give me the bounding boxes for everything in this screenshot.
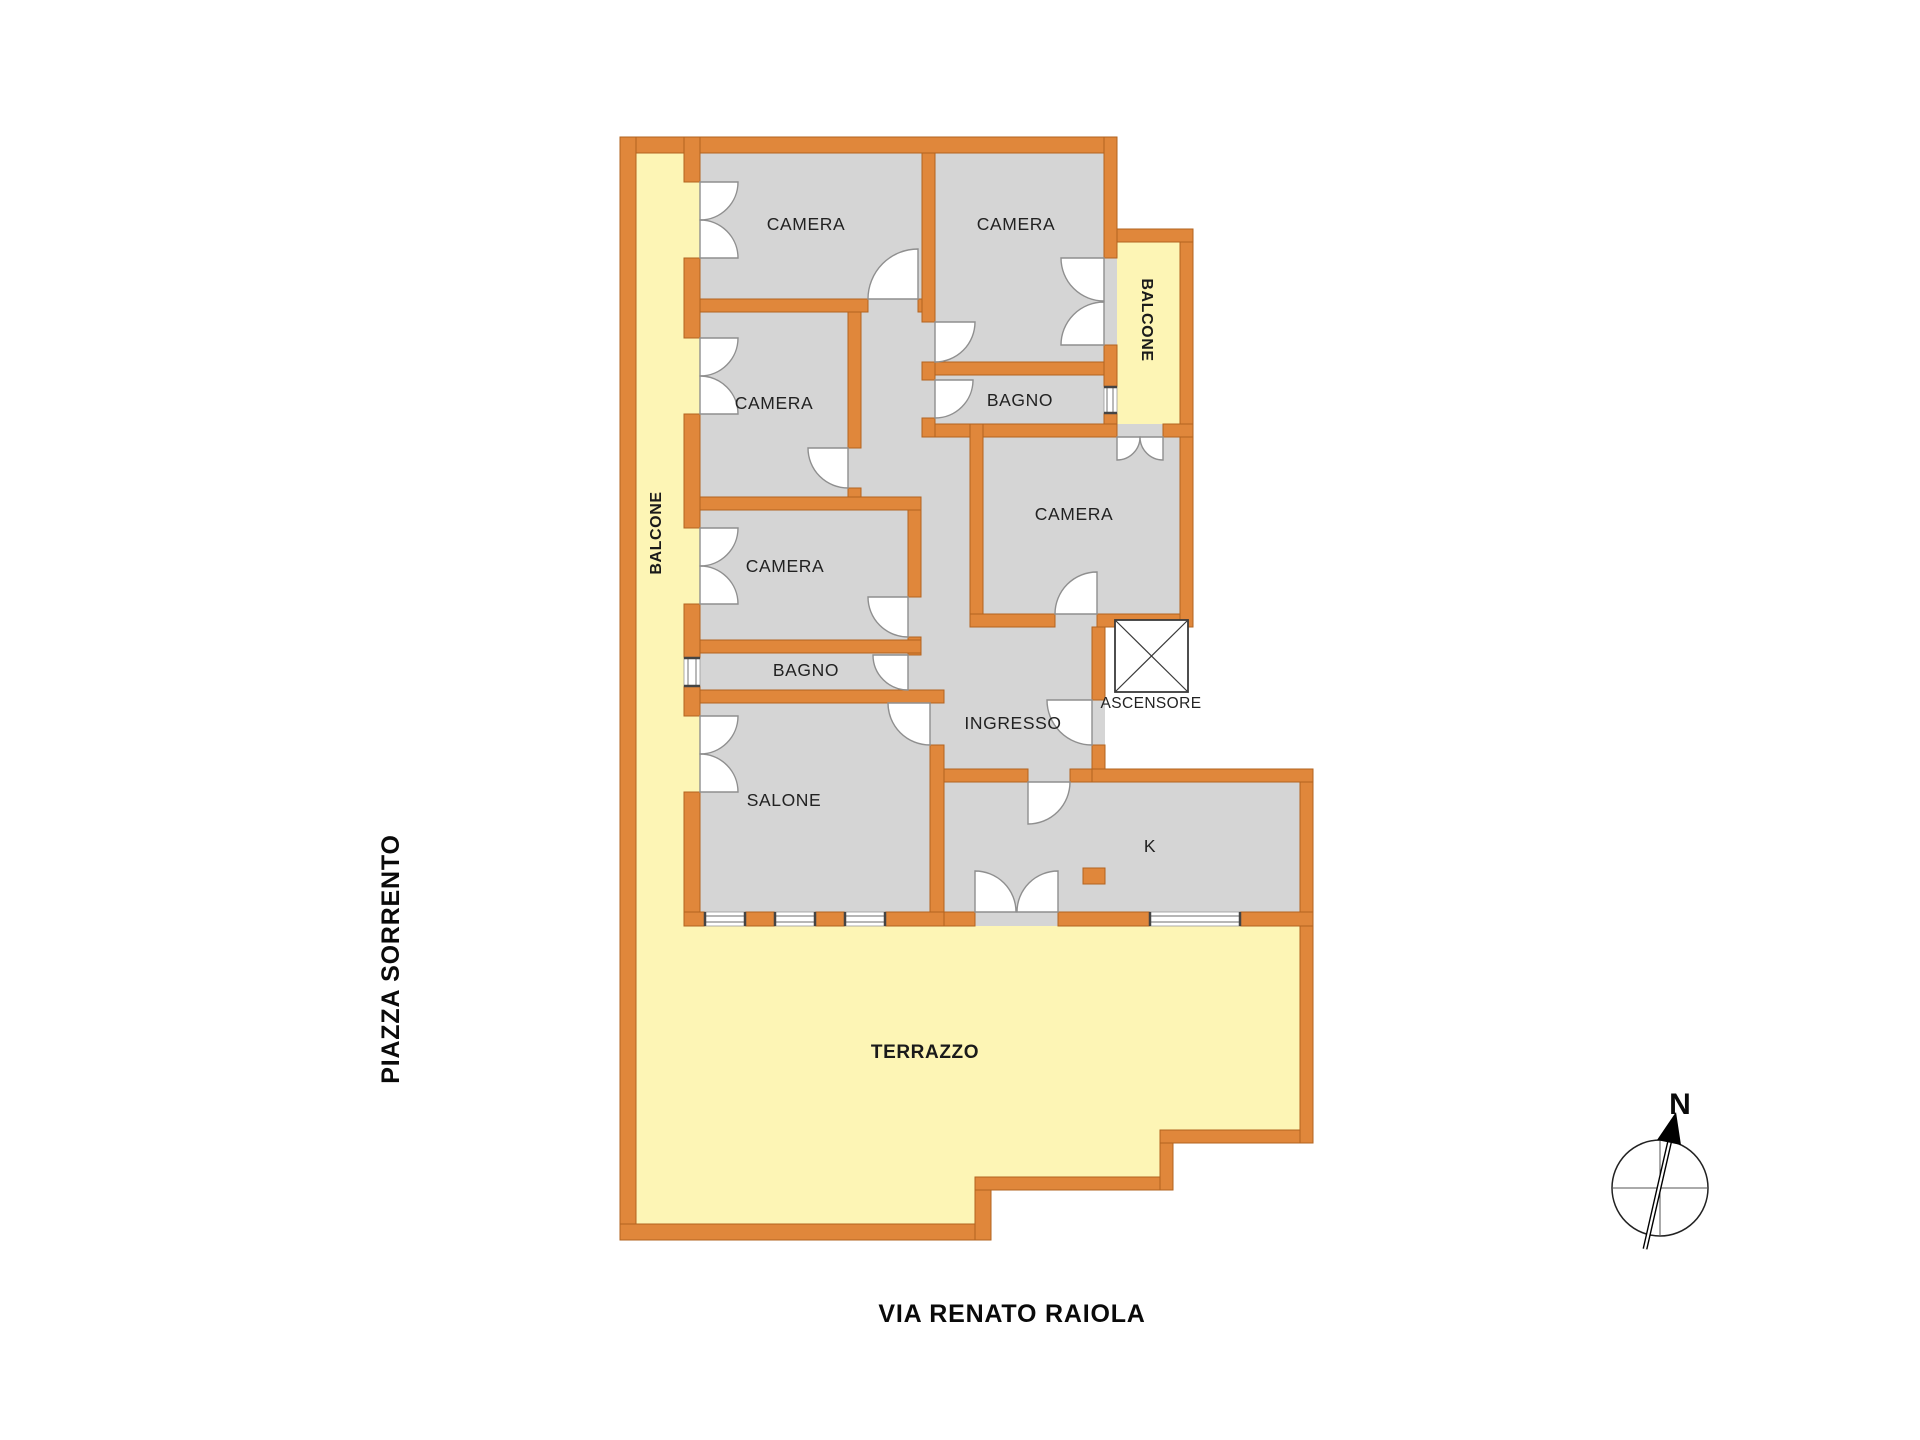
window-bagno-top bbox=[1104, 387, 1117, 413]
label-ascensore: ASCENSORE bbox=[1101, 695, 1202, 712]
label-bagno-top: BAGNO bbox=[987, 390, 1053, 410]
window-salone-3 bbox=[845, 912, 885, 926]
window-bagno-left bbox=[684, 658, 700, 686]
label-balcone-left: BALCONE bbox=[648, 491, 665, 574]
north-compass: N bbox=[1612, 1088, 1708, 1249]
street-label-left: PIAZZA SORRENTO bbox=[377, 834, 405, 1084]
label-camera-middle-right: CAMERA bbox=[1035, 504, 1113, 524]
label-camera-top-left: CAMERA bbox=[767, 214, 845, 234]
elevator bbox=[1115, 620, 1188, 692]
label-camera-top-middle: CAMERA bbox=[977, 214, 1055, 234]
window-salone-1 bbox=[705, 912, 745, 926]
window-kitchen bbox=[1150, 912, 1240, 926]
door-gap bbox=[684, 716, 700, 792]
label-bagno-left: BAGNO bbox=[773, 660, 839, 680]
label-terrazzo: TERRAZZO bbox=[871, 1042, 979, 1063]
label-balcone-right: BALCONE bbox=[1138, 278, 1155, 361]
floor-plan-drawing: CAMERA CAMERA CAMERA CAMERA BAGNO CAMERA… bbox=[0, 0, 1920, 1440]
label-camera-left-lower: CAMERA bbox=[746, 556, 824, 576]
label-salone: SALONE bbox=[747, 790, 822, 810]
kitchen-fixture bbox=[1083, 868, 1105, 884]
north-label: N bbox=[1669, 1088, 1691, 1121]
floor-plan-page: CAMERA CAMERA CAMERA CAMERA BAGNO CAMERA… bbox=[0, 0, 1920, 1440]
label-camera-left-middle: CAMERA bbox=[735, 393, 813, 413]
window-salone-2 bbox=[775, 912, 815, 926]
door-gap bbox=[684, 338, 700, 414]
street-label-bottom: VIA RENATO RAIOLA bbox=[878, 1300, 1145, 1328]
label-kitchen: K bbox=[1144, 836, 1156, 856]
door-gap bbox=[684, 528, 700, 604]
door-gap bbox=[684, 182, 700, 258]
room-floors bbox=[700, 153, 1313, 926]
label-ingresso: INGRESSO bbox=[964, 713, 1061, 733]
